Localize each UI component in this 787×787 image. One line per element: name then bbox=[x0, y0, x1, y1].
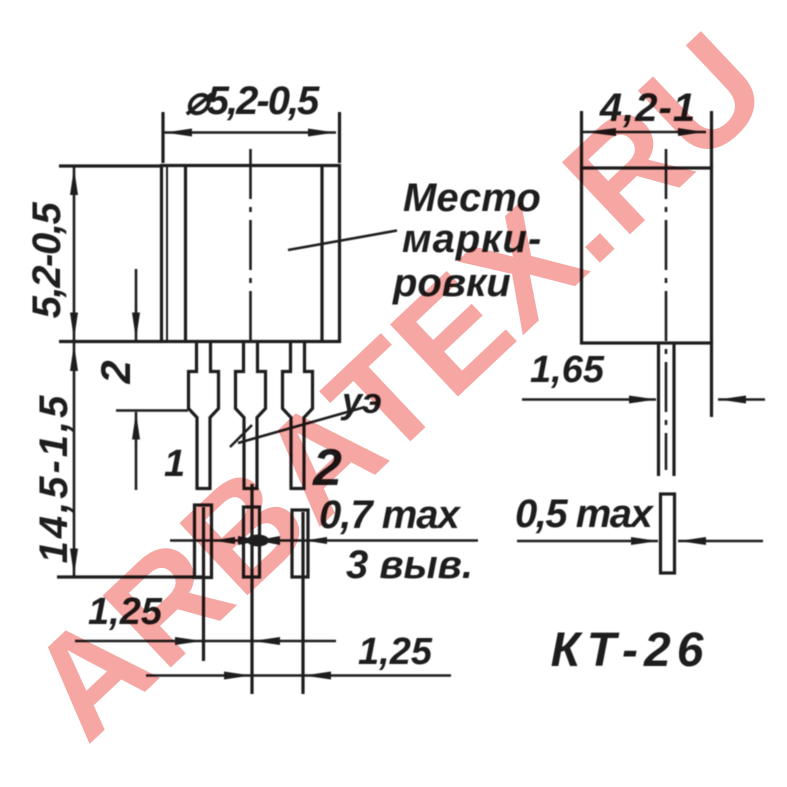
svg-text:ARBATEX.RU: ARBATEX.RU bbox=[0, 2, 787, 769]
